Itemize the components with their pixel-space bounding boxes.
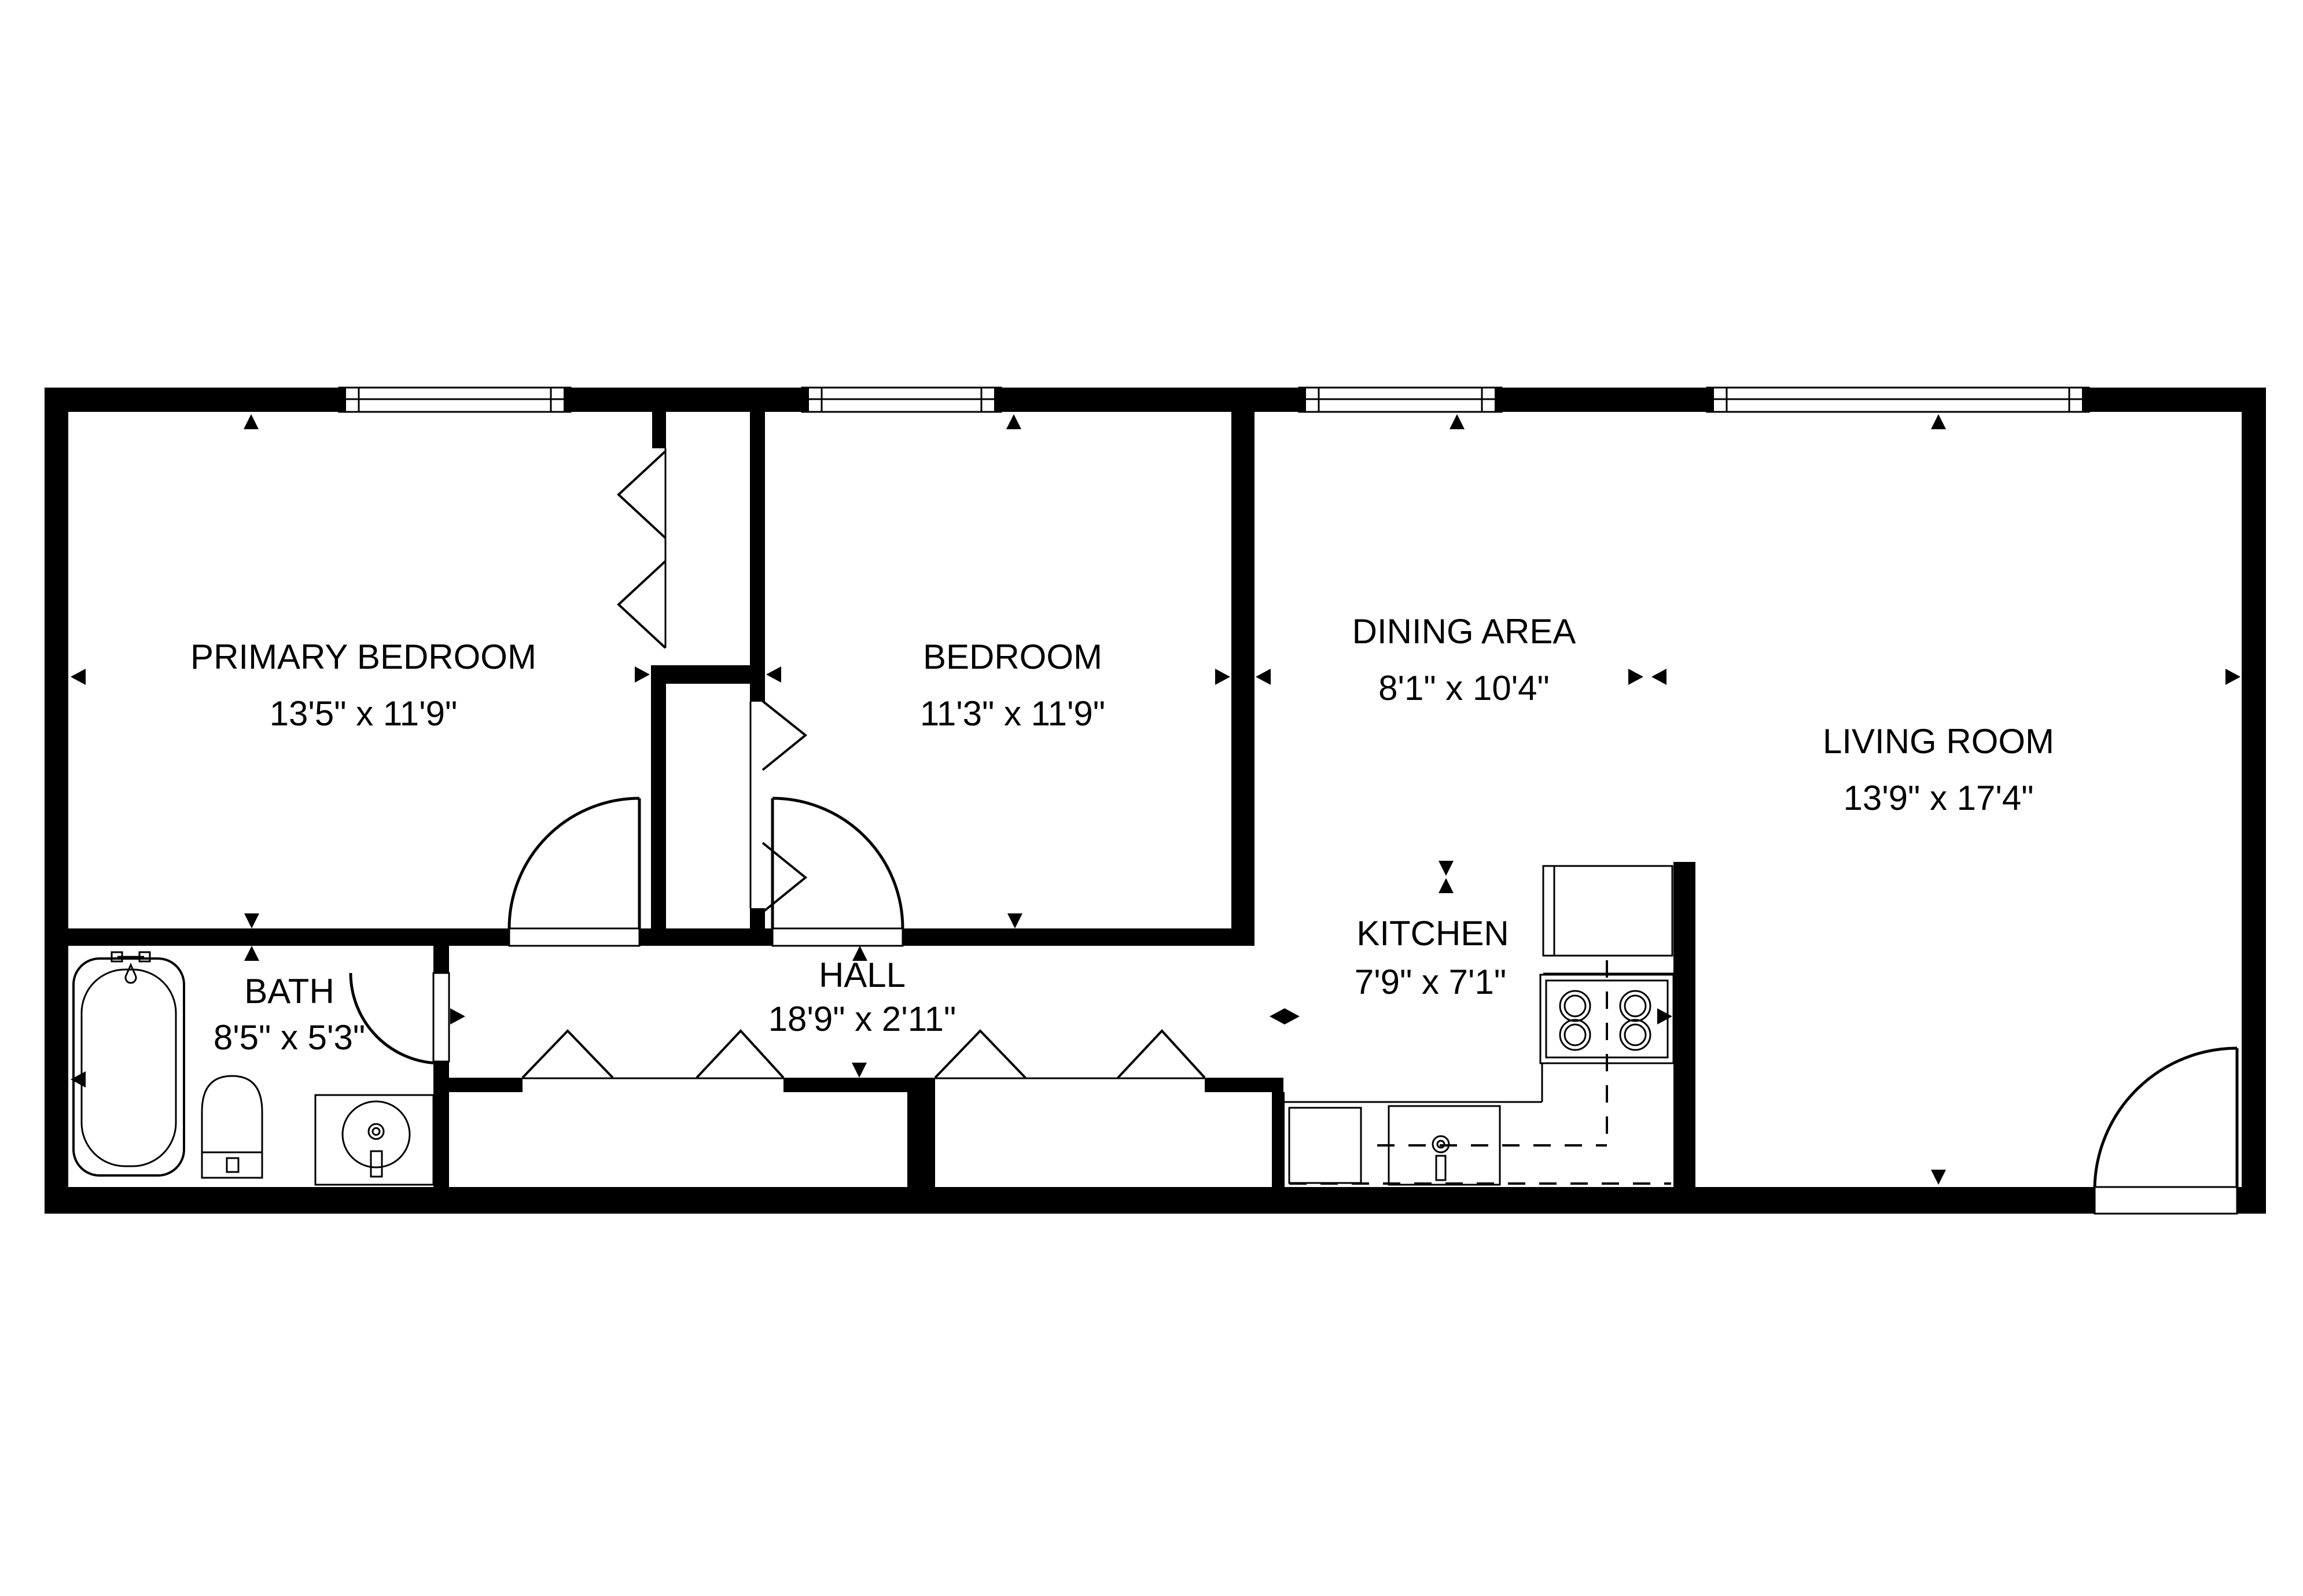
room-dims-bedroom: 11'3" x 11'9" [920, 694, 1105, 733]
window-icon-primary-bedroom [339, 388, 571, 412]
room-label-kitchen: KITCHEN [1356, 914, 1509, 953]
room-dims-kitchen: 7'9" x 7'1" [1355, 963, 1506, 1001]
room-dims-living-room: 13'9" x 17'4" [1843, 779, 2033, 817]
room-label-dining-area: DINING AREA [1352, 612, 1576, 651]
room-dims-dining-area: 8'1" x 10'4" [1378, 669, 1550, 707]
room-label-living-room: LIVING ROOM [1823, 722, 2054, 761]
floorplan-drawing: PRIMARY BEDROOM 13'5" x 11'9" BEDROOM 11… [0, 0, 2303, 1596]
window-icon-living-room [1707, 388, 2089, 412]
window-icon-bedroom [802, 388, 1001, 412]
room-label-primary-bedroom: PRIMARY BEDROOM [190, 637, 536, 676]
room-label-hall: HALL [819, 956, 906, 994]
room-label-bedroom: BEDROOM [923, 637, 1102, 676]
window-icon-dining [1299, 388, 1502, 412]
floorplan-page: PRIMARY BEDROOM 13'5" x 11'9" BEDROOM 11… [0, 0, 2303, 1596]
room-dims-bath: 8'5" x 5'3" [214, 1018, 365, 1057]
room-dims-primary-bedroom: 13'5" x 11'9" [270, 694, 458, 733]
room-label-bath: BATH [244, 972, 334, 1011]
bathtub-icon [73, 952, 184, 1175]
room-dims-hall: 18'9" x 2'11" [768, 1000, 956, 1038]
